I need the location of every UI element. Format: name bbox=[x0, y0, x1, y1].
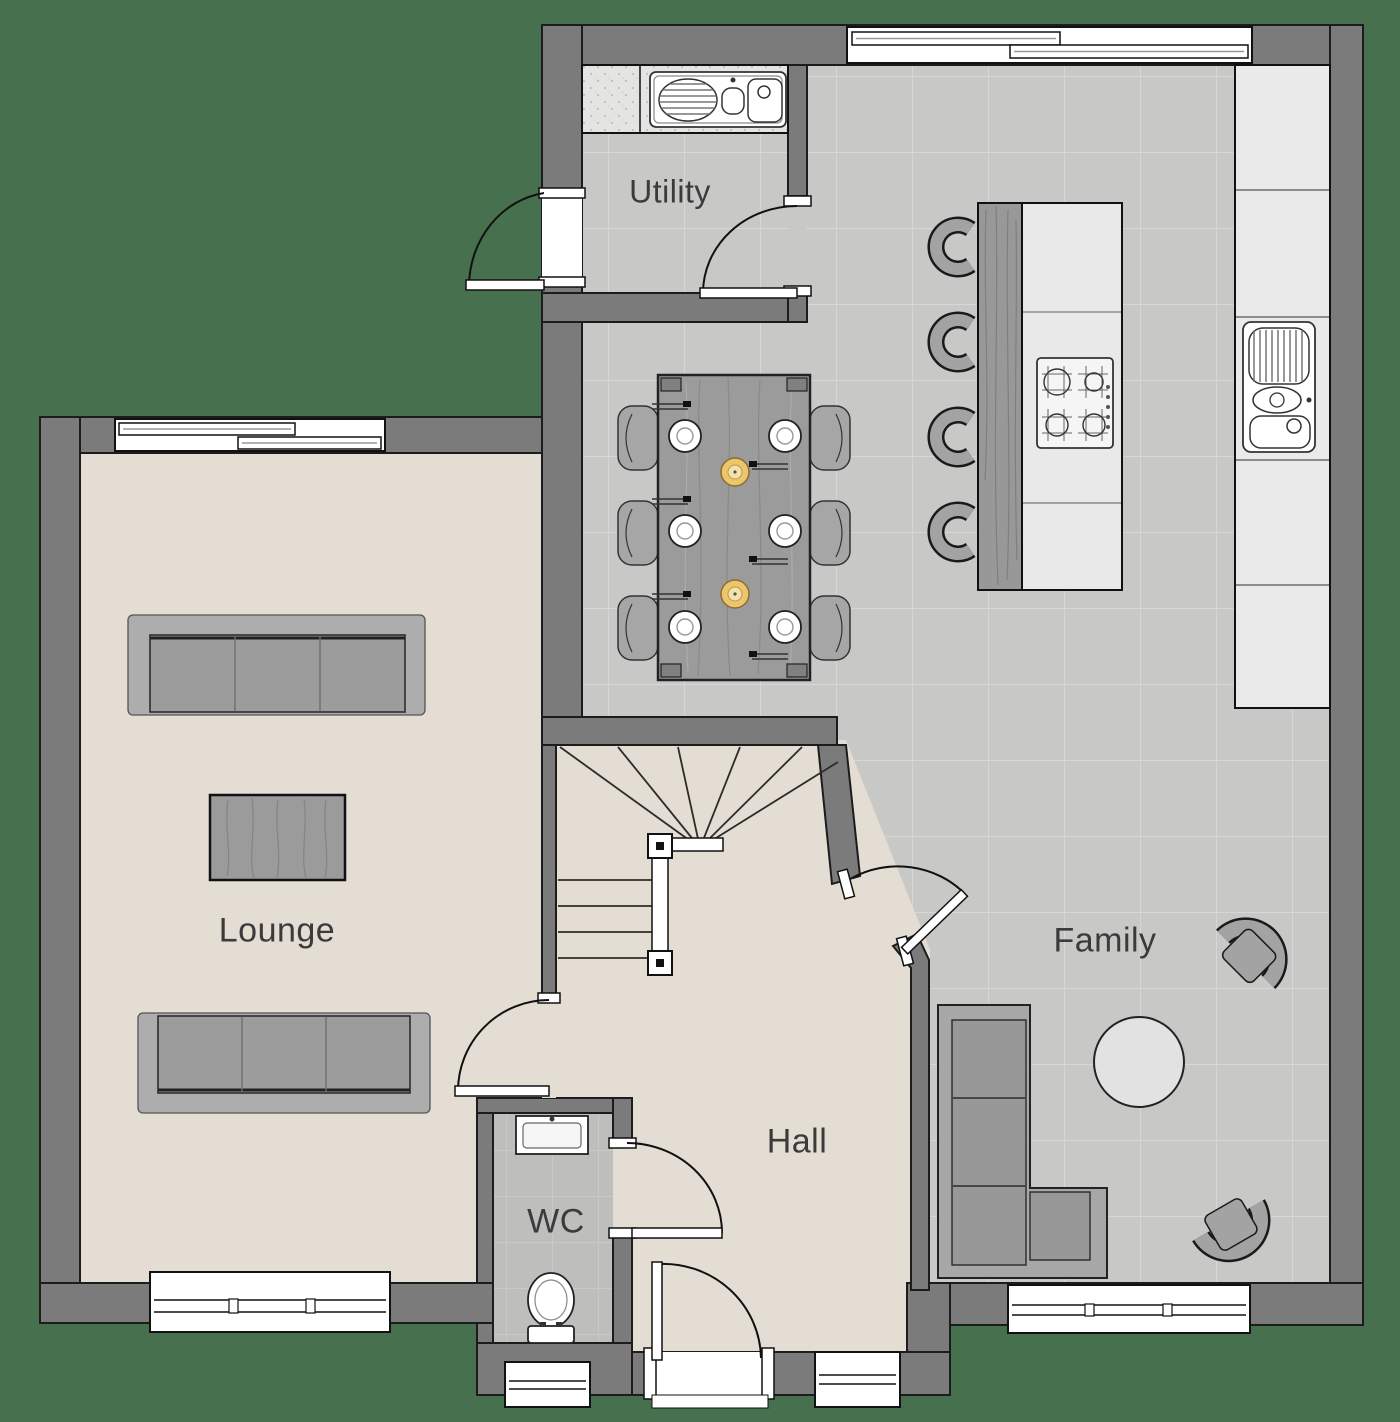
sink-tap bbox=[1307, 398, 1312, 403]
door-leaf bbox=[455, 1086, 549, 1096]
kitchen-island bbox=[978, 203, 1122, 590]
dining-chair bbox=[618, 596, 658, 660]
wc-toilet bbox=[528, 1273, 574, 1343]
plate bbox=[669, 611, 701, 643]
door-jamb bbox=[784, 196, 811, 206]
lounge-top-window bbox=[115, 419, 385, 451]
sink-tap bbox=[731, 78, 736, 83]
room-label-hall: Hall bbox=[767, 1123, 828, 1162]
door-jamb bbox=[762, 1348, 774, 1399]
wall-segment bbox=[1330, 25, 1363, 1325]
wall-segment bbox=[40, 417, 80, 1323]
plate bbox=[769, 420, 801, 452]
dining-chair bbox=[810, 501, 850, 565]
sink-drainer bbox=[1249, 328, 1309, 384]
door-leaf bbox=[632, 1228, 722, 1238]
dining-chair bbox=[810, 406, 850, 470]
toilet-cistern bbox=[528, 1326, 574, 1343]
room-label-utility: Utility bbox=[629, 174, 711, 211]
plate bbox=[669, 420, 701, 452]
utility-sink bbox=[650, 72, 786, 127]
hob bbox=[1037, 358, 1113, 448]
door-jamb bbox=[538, 993, 560, 1003]
door-leaf bbox=[652, 1262, 662, 1360]
plate bbox=[669, 515, 701, 547]
sink-bowl-large bbox=[1250, 416, 1310, 448]
front-door-step bbox=[652, 1395, 768, 1408]
room-label-wc: WC bbox=[527, 1203, 585, 1242]
wc-basin bbox=[516, 1116, 588, 1154]
dining-chair bbox=[810, 596, 850, 660]
wall-segment bbox=[542, 717, 837, 745]
coffee-table bbox=[210, 795, 345, 880]
floorplan-canvas: Utility Lounge Hall WC Family bbox=[0, 0, 1400, 1422]
wall-segment bbox=[477, 1098, 632, 1113]
floorplan-drawing bbox=[0, 0, 1400, 1422]
door-leaf bbox=[700, 288, 797, 298]
family-window bbox=[1008, 1285, 1250, 1333]
plate bbox=[769, 515, 801, 547]
utility-door-opening bbox=[789, 206, 806, 286]
sofa-bottom bbox=[138, 1013, 430, 1113]
dining-chair bbox=[618, 406, 658, 470]
lounge-bottom-window bbox=[150, 1272, 390, 1332]
sink-bowl-small bbox=[722, 88, 744, 114]
room-label-family: Family bbox=[1053, 922, 1156, 961]
kitchen-sink bbox=[1243, 322, 1315, 452]
door-leaf bbox=[466, 280, 544, 290]
stair-nosing bbox=[668, 838, 723, 851]
basin-tap bbox=[550, 1117, 555, 1122]
utility-room bbox=[582, 65, 788, 133]
room-label-lounge: Lounge bbox=[219, 912, 335, 951]
door-swing-arc bbox=[469, 193, 544, 285]
sink-bowl-small bbox=[1253, 387, 1301, 413]
utility-exterior-door-opening bbox=[542, 196, 582, 281]
door-jamb bbox=[539, 277, 585, 287]
dining-set bbox=[618, 375, 850, 680]
dining-chair bbox=[618, 501, 658, 565]
door-jamb bbox=[539, 188, 585, 198]
front-door-opening bbox=[652, 1352, 768, 1395]
hall-window bbox=[815, 1352, 900, 1407]
wall-segment bbox=[788, 65, 807, 196]
wc-window bbox=[505, 1362, 590, 1407]
sofa-top bbox=[128, 615, 425, 715]
wall-segment bbox=[542, 25, 582, 743]
lounge-door-opening bbox=[542, 1003, 556, 1098]
wall-segment bbox=[542, 743, 556, 997]
kitchen-window bbox=[847, 27, 1252, 63]
plate bbox=[769, 611, 801, 643]
round-coffee-table bbox=[1094, 1017, 1184, 1107]
